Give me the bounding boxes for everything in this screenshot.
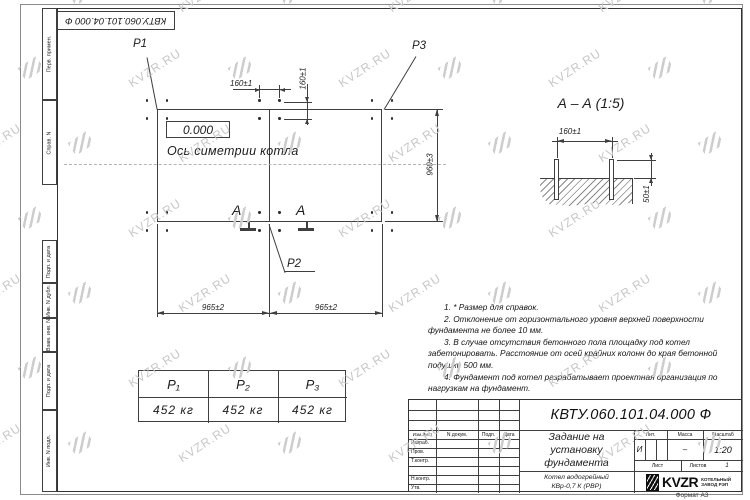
product-name: Котел водогрейный КВр-0,7 К (РВР) [519,474,634,491]
product-name-line1: Котел водогрейный [519,474,634,483]
title-block-gridline [409,466,519,467]
company-stamp: KVZR КОТЕЛЬНЫЙ ЗАВОД РЭП [634,471,743,493]
frame-label-podp-data-2: Подп. и дата [42,352,57,410]
title-block-gridline [409,420,519,421]
frame-label-perv-primen: Перв. примен. [42,8,57,100]
load-point-p2-label: P2 [287,258,301,270]
lit-header: Лит. [634,430,667,439]
load-point-p1-label: P1 [133,38,147,50]
dim-960: 960±3 [425,147,436,183]
load-table-header-p1: Р₁ [139,371,208,397]
plan-center-divider-line [269,109,270,222]
drawing-title-line2: установку [519,444,634,457]
anchor-bolt-dot [278,211,280,213]
anchor-bolt-dot [166,99,168,101]
col-header-n-dokum: N докум. [436,430,478,439]
anchor-bolt-dot [278,99,280,101]
dim-160-section: 160±1 [545,127,595,136]
section-mark-letter-right: А [296,202,305,218]
sheets-header: Листов [683,460,713,471]
frame-label-inv-podl: Инв. N подл. [42,410,57,492]
drawing-title-line1: Задание на [519,431,634,444]
scale-header: Масштаб [703,430,743,439]
frame-label-sprav-n: Справ. N [42,100,57,185]
load-table: Р₁ Р₂ Р₃ 452 кг 452 кг 452 кг [138,370,346,422]
anchor-bolt-dot [371,211,373,213]
dim-arrow [305,97,309,102]
note: 2. Отклонение от горизонтального уровня … [428,314,735,337]
load-table-value-p2: 452 кг [208,397,278,423]
technical-notes: 1. * Размер для справок.2. Отклонение от… [428,302,735,395]
row-label-tkontr: Т.контр. [411,458,429,464]
title-block-gridline [409,484,519,485]
sheet-header: Лист [634,460,681,471]
datum-elevation-box: 0.000 [166,121,230,138]
anchor-bolt-dot [391,99,393,101]
dim-160-h: 160±1 [230,79,252,88]
title-block-gridline [645,439,646,460]
lit-value: И [634,439,645,460]
col-header-podp: Подп. [478,430,499,439]
title-block-gridline [436,400,437,493]
dim-965-left: 965±2 [157,303,269,312]
anchor-bolt-dot [146,117,148,119]
anchor-bolt-dot [258,99,260,101]
frame-label-inv-dubl: Инв. N дубл. [42,283,57,318]
row-label-utv: Утв. [411,485,421,491]
dim-arrow [605,139,612,143]
anchor-bolt-dot [278,117,280,119]
company-subtitle: КОТЕЛЬНЫЙ ЗАВОД РЭП [701,477,731,487]
anchor-bolt-dot [146,211,148,213]
anchor-bolt-dot [258,229,260,231]
corner-stamp-text: КВТУ.060.101.04.000 Ф [65,15,166,26]
anchor-bolt-dot [391,229,393,231]
load-table-header-p2: Р₂ [208,371,278,397]
anchor-bolt-dot [166,229,168,231]
datum-elevation-value: 0.000 [183,123,213,137]
mass-header: Масса [667,430,703,439]
col-header-izm-list: Изм.Лист [409,430,436,439]
col-header-data: Дата [499,430,519,439]
section-mark-letter-left: А [232,202,241,218]
drawing-sheet: КВТУ.060.101.04.000 Ф Перв. примен. Спра… [0,0,750,500]
dim-965-right: 965±2 [270,303,382,312]
kvzr-logo-icon [646,474,659,491]
dim-line-height [437,109,438,222]
frame-label-podp-data-1: Подп. и дата [42,240,57,283]
note: 4. Фундамент под котел разрабатывает про… [428,372,735,395]
section-anchor-bolt-left [554,159,559,200]
section-concrete-right-edge [632,179,633,204]
drawing-title-line3: фундамента [519,457,634,470]
dim-arrow [557,139,564,143]
company-name: KVZR [662,474,698,490]
corner-stamp-box: КВТУ.060.101.04.000 Ф [57,11,175,30]
ext-line-right [382,224,383,317]
dim-160-v: 160±1 [298,60,309,98]
anchor-bolt-dot [278,229,280,231]
dim-arrow [435,109,439,116]
p2-label-underline [284,271,315,272]
product-name-line2: КВр-0,7 К (РВР) [519,483,634,492]
sheets-value: 1 [719,460,735,471]
dim-arrow [280,88,285,92]
document-number: КВТУ.060.101.04.000 Ф [519,402,743,428]
format-label: Формат А3 [648,492,736,499]
anchor-bolt-dot [258,211,260,213]
mass-value: – [667,439,703,460]
dim-arrow [435,215,439,222]
note: 1. * Размер для справок. [428,302,735,314]
title-block-gridline [409,410,519,411]
anchor-bolt-dot [166,211,168,213]
title-block-gridline [681,460,682,471]
anchor-bolt-dot [391,211,393,213]
frame-label-vzam-inv: Взам. инв. N [42,318,57,352]
row-label-razrab: Разраб. [411,440,429,446]
scale-value: 1:20 [703,439,743,460]
anchor-bolt-dot [371,117,373,119]
anchor-bolt-dot [146,229,148,231]
section-anchor-bolt-right [609,159,614,200]
dim-arrow [255,88,260,92]
dim-arrow [649,155,653,160]
title-block-gridline [478,400,479,493]
title-block-gridline [499,400,500,493]
section-cut-stroke [240,228,256,231]
row-label-nkontr: Н.контр. [411,476,430,482]
anchor-bolt-dot [371,229,373,231]
dim-50: 50±1 [641,177,651,211]
anchor-bolt-dot [258,117,260,119]
title-block-gridline [409,448,519,449]
load-table-value-p3: 452 кг [278,397,347,423]
row-label-prov: Пров. [411,449,424,455]
anchor-bolt-dot [391,117,393,119]
anchor-bolt-dot [146,99,148,101]
load-table-value-p1: 452 кг [139,397,208,423]
load-table-header-p3: Р₃ [278,371,347,397]
note: 3. В случае отсутствия бетонного пола пл… [428,337,735,372]
anchor-bolt-dot [371,99,373,101]
dim-arrow [305,119,309,124]
title-block-gridline [656,439,657,460]
drawing-title: Задание на установку фундамента [519,431,634,470]
boiler-symmetry-axis-label: Ось симетрии котла [167,144,299,158]
title-block: КВТУ.060.101.04.000 Ф Изм.Лист N докум. … [408,399,742,492]
plan-symmetry-axis-line [64,164,446,165]
anchor-bolt-dot [166,117,168,119]
section-view-title: А – А (1:5) [536,95,646,111]
section-cut-stroke [298,228,314,231]
load-point-p3-label: P3 [412,40,426,52]
company-subtitle-line2: ЗАВОД РЭП [701,482,731,487]
